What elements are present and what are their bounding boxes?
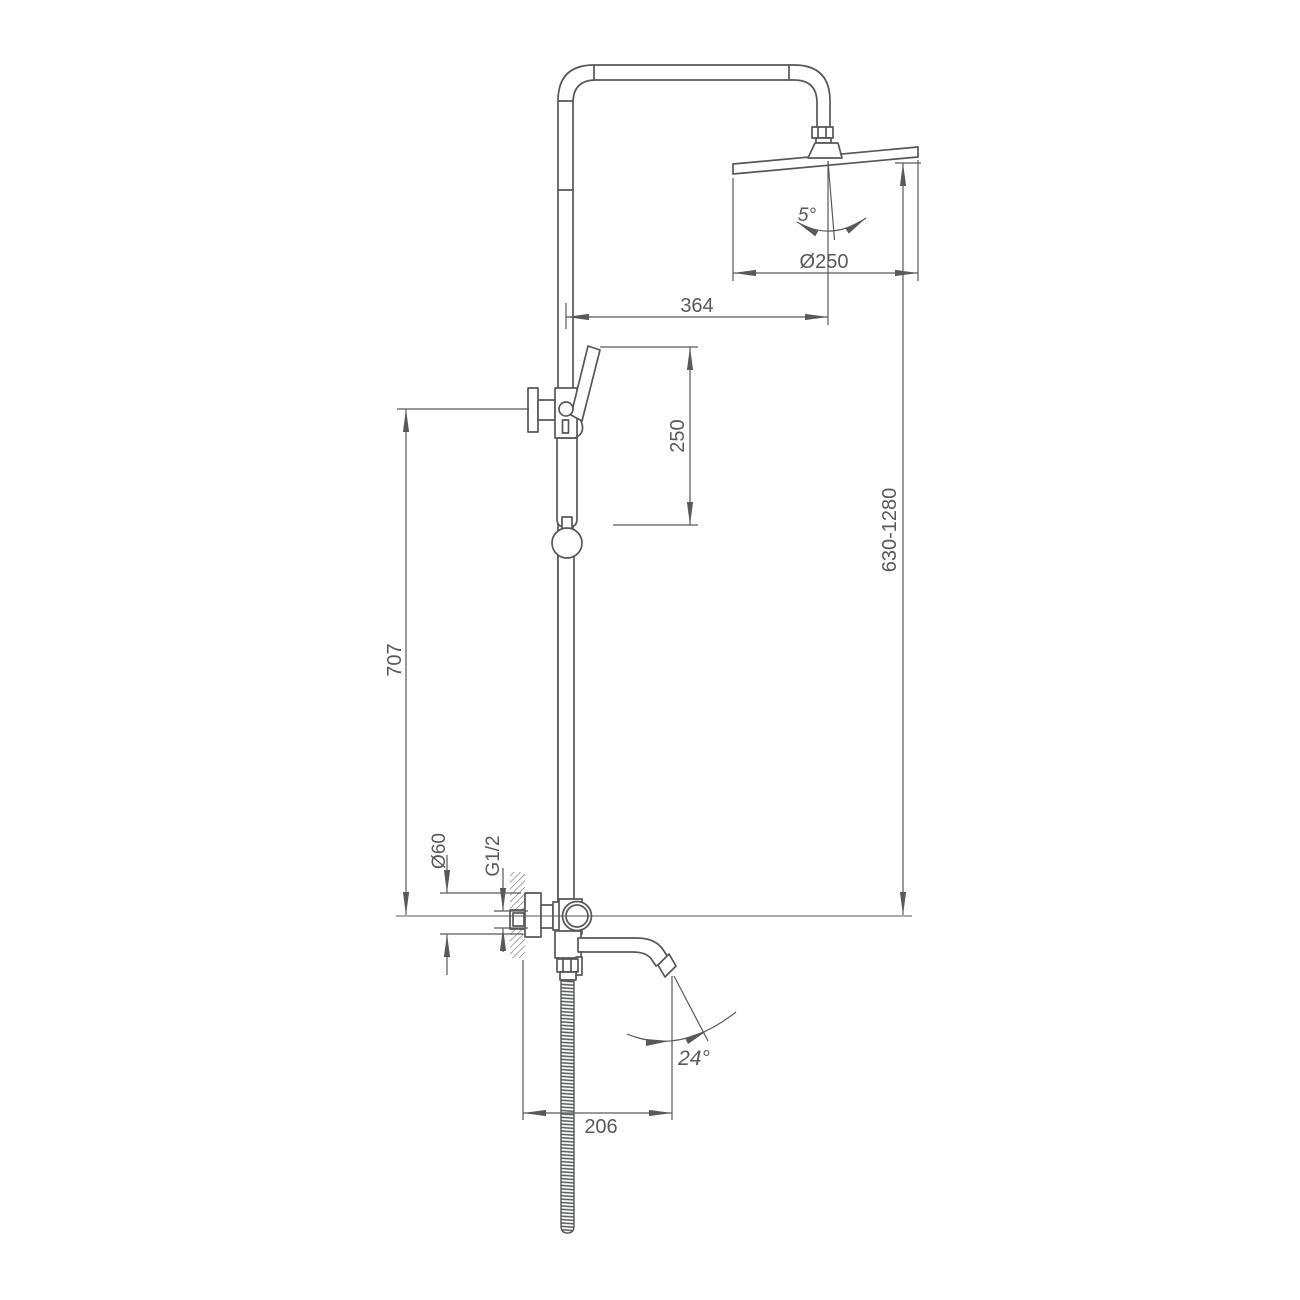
spout-tube — [578, 938, 669, 966]
label-thread: G1/2 — [483, 835, 504, 876]
angle-reference-tilted — [828, 161, 835, 240]
tub-spout — [578, 938, 676, 977]
holder-slot — [563, 420, 569, 433]
riser-lower-section — [558, 555, 574, 905]
label-spout-reach: 206 — [584, 1116, 617, 1138]
pipe-inner-edge — [573, 80, 817, 903]
label-arm-reach: 364 — [680, 295, 713, 317]
label-holder-height: 707 — [384, 643, 406, 676]
rain-shower-head — [733, 127, 918, 174]
hand-shower-wand — [571, 346, 600, 421]
hand-shower-assembly — [528, 346, 600, 558]
arc-arrowhead — [646, 1039, 670, 1046]
slider-ball — [552, 528, 582, 558]
label-height-range: 630-1280 — [879, 488, 901, 573]
arc-arrowhead — [685, 1030, 708, 1044]
hose-collar — [560, 972, 576, 980]
holder-hand-knob — [528, 388, 538, 432]
dimension-labels: 364 Ø250 5° 630-1280 250 707 Ø60 G1/2 20… — [384, 205, 901, 1138]
label-head-diameter: Ø250 — [800, 251, 849, 273]
riser-and-shower-arm — [558, 65, 830, 905]
escutcheon — [525, 893, 541, 937]
hose-flex-tube — [561, 980, 574, 1233]
holder-pivot — [559, 402, 573, 416]
angle-arc — [627, 1012, 736, 1041]
valve-lower-body — [555, 931, 581, 958]
holder-knob-stem — [538, 400, 555, 420]
inlet-fitting-inner — [513, 913, 524, 926]
dim-head-angle — [797, 161, 866, 325]
label-hand-shower-travel: 250 — [667, 419, 689, 452]
technical-drawing-canvas: 364 Ø250 5° 630-1280 250 707 Ø60 G1/2 20… — [0, 0, 1300, 1300]
label-head-angle: 5° — [798, 205, 817, 226]
wall-and-mixer-valve — [510, 872, 592, 975]
dim-holder-height — [397, 409, 529, 915]
angle-reference-tilted — [674, 976, 708, 1041]
label-escutcheon-diameter: Ø60 — [429, 833, 450, 869]
label-spout-angle: 24° — [677, 1047, 710, 1070]
head-cone — [808, 143, 842, 158]
slide-tube — [557, 438, 577, 527]
hose-nut — [557, 959, 578, 972]
shower-system-drawing: 364 Ø250 5° 630-1280 250 707 Ø60 G1/2 20… — [0, 0, 1300, 1300]
arm-nut — [812, 127, 833, 138]
pipe-outer-edge — [558, 65, 830, 905]
shower-head-connector — [808, 127, 842, 158]
shower-hose — [557, 959, 578, 1233]
dim-spout-angle — [627, 976, 736, 1046]
